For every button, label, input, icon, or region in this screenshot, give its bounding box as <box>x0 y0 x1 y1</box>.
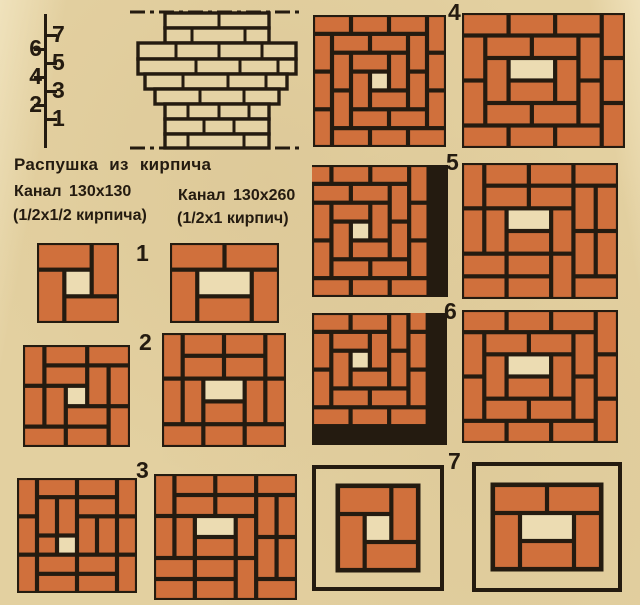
course-number-5: 5 <box>446 150 459 174</box>
course-number-2: 2 <box>139 330 152 354</box>
brick-course-diagram-4-130x130 <box>313 15 446 147</box>
brick-course-diagram-6-130x130 <box>312 313 447 445</box>
brick-course-diagram-7-130x130 <box>312 465 444 591</box>
course-number-4: 4 <box>448 0 461 24</box>
course-number-3: 3 <box>136 458 149 482</box>
brick-course-diagram-3-130x130 <box>17 478 137 593</box>
masonry-manual-page: 7 6 5 4 3 2 1 <box>0 0 640 605</box>
brick-course-diagram-2-130x260 <box>162 333 286 447</box>
course-number-1: 1 <box>136 241 149 265</box>
course-number-7: 7 <box>448 449 461 473</box>
brick-course-diagram-1-130x260 <box>170 243 279 323</box>
course-number-6: 6 <box>444 299 457 323</box>
brick-course-diagram-3-130x260 <box>154 474 297 600</box>
brick-course-diagram-5-130x130 <box>312 165 448 297</box>
brick-course-diagram-2-130x130 <box>23 345 130 447</box>
brick-course-diagram-1-130x130 <box>37 243 119 323</box>
brick-course-diagram-6-130x260 <box>462 310 618 443</box>
brick-course-diagram-4-130x260 <box>462 13 625 148</box>
diagram-layer: 1234567 <box>0 0 640 605</box>
brick-course-diagram-7-130x260 <box>472 462 622 592</box>
brick-course-diagram-5-130x260 <box>462 163 618 299</box>
